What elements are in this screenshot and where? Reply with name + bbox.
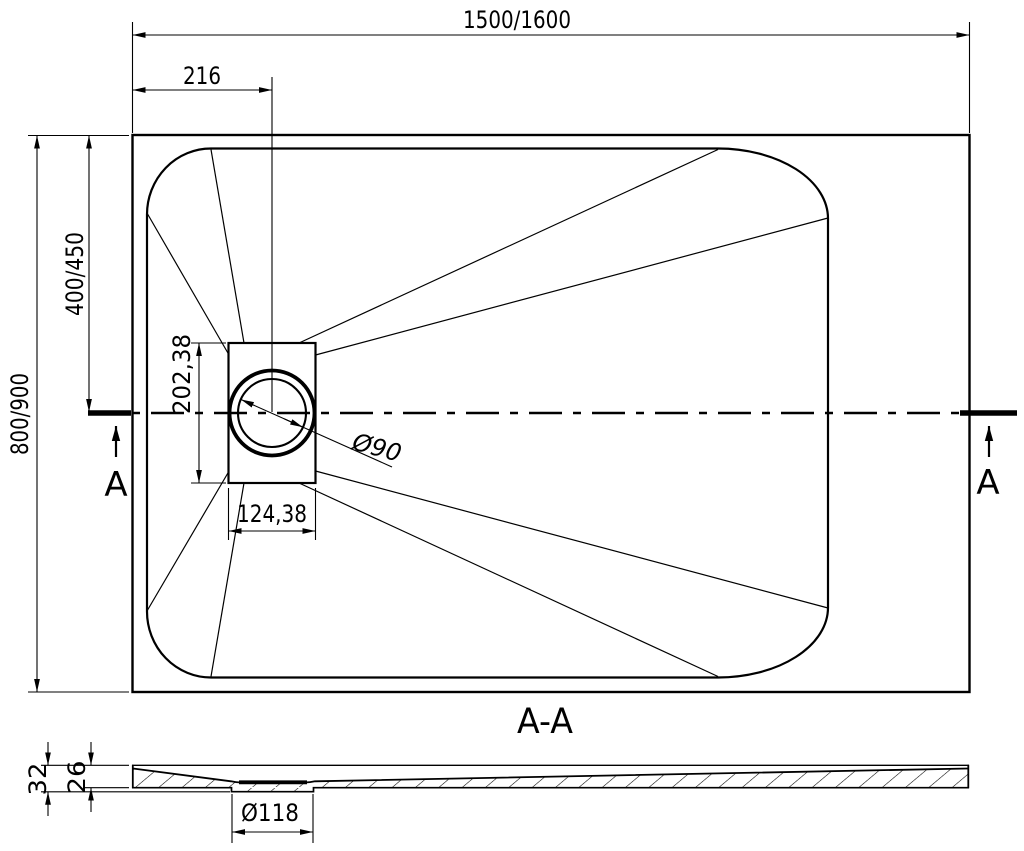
slope-fold-line — [299, 150, 718, 344]
dimension-text-drain-diameter: Ø90 — [348, 427, 404, 467]
slope-fold-line — [316, 471, 829, 608]
section-view: A-A 32 26 Ø118 — [24, 702, 969, 843]
dimension-text-half-width: 400/450 — [61, 232, 89, 316]
dimension-text-width: 800/900 — [6, 373, 34, 455]
dimension-text-drain-offset: 216 — [183, 62, 221, 90]
slope-fold-line — [147, 472, 229, 611]
technical-drawing-page: A A 1500/1600 216 800/900 400/450 202,38… — [0, 0, 1024, 851]
section-title: A-A — [517, 702, 573, 742]
section-label-right: A — [976, 463, 999, 503]
dimension-text-total-height: 32 — [24, 763, 52, 796]
slope-fold-line — [299, 483, 718, 677]
top-view: A A — [88, 77, 1017, 692]
dimension-text-base-height: 26 — [63, 761, 91, 794]
dimension-text-recess-height: 202,38 — [168, 334, 196, 414]
slope-fold-line — [147, 213, 229, 354]
section-label-left: A — [104, 465, 127, 505]
slope-fold-line — [316, 218, 829, 355]
slope-fold-line — [211, 150, 244, 344]
shower-tray-drawing: A A 1500/1600 216 800/900 400/450 202,38… — [0, 0, 1024, 851]
top-view-dimensions: 1500/1600 216 800/900 400/450 202,38 124… — [6, 6, 970, 692]
dimension-text-pocket-diameter: Ø118 — [241, 799, 299, 827]
dimension-text-length: 1500/1600 — [463, 6, 571, 34]
drain-diameter-leader-arrow — [284, 419, 303, 428]
dimension-text-recess-width: 124,38 — [237, 500, 307, 528]
